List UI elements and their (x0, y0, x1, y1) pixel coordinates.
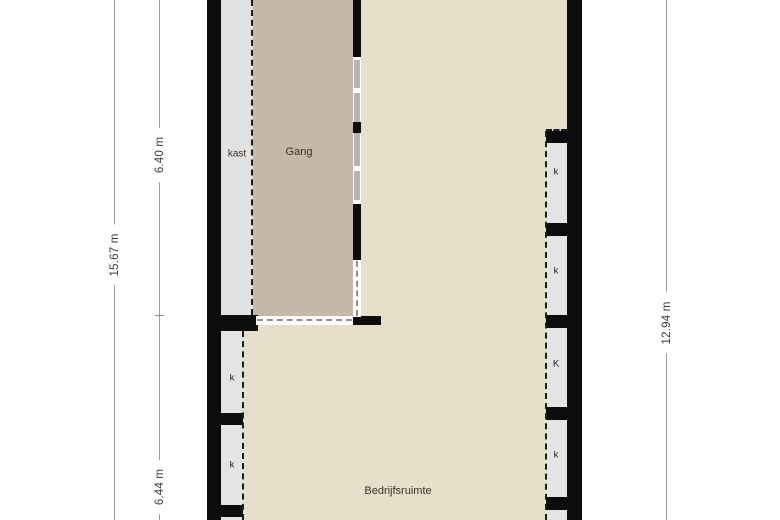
left-closet-column-fill (221, 331, 243, 520)
glass-segment-1 (354, 60, 360, 88)
wall-gang-right-mid (353, 200, 361, 260)
wall-kast-bottom (207, 315, 258, 331)
wall-stub-right-4 (546, 407, 567, 420)
boundary-right-closets-top (546, 129, 567, 131)
wall-stub-left-2 (221, 505, 243, 517)
boundary-kast-gang (251, 0, 253, 315)
wall-gang-bottom-right (353, 316, 381, 325)
closet-label-right-1: k (554, 167, 559, 178)
dimension-label-outer-left: 15.67 m (109, 225, 121, 286)
closet-label-right-2: k (554, 266, 559, 277)
wall-stub-left-1 (221, 413, 243, 425)
opening-gang-right (353, 260, 361, 317)
dimension-label-inner-top-left: 6.40 m (154, 128, 166, 182)
floor-plan-page: { "floor_plan": { "type": "architectural… (0, 0, 780, 520)
closet-label-right-4: k (554, 450, 559, 461)
wall-stub-right-1 (546, 131, 567, 143)
wall-right (567, 0, 582, 520)
glass-segment-2 (354, 93, 360, 122)
room-gang-fill (253, 0, 353, 316)
room-label-bedrijfsruimte: Bedrijfsruimte (364, 485, 431, 497)
dimension-line-right (666, 0, 667, 520)
closet-label-left-2: k (230, 460, 235, 471)
closet-label-left-1: k (230, 373, 235, 384)
glass-segment-3 (354, 133, 360, 166)
room-label-kast: kast (228, 149, 246, 160)
floor-plan-canvas: kast Gang Bedrijfsruimte k k K k k k 15.… (0, 0, 780, 520)
dimension-label-inner-bottom-left: 6.44 m (154, 460, 166, 514)
boundary-left-closets (242, 331, 244, 520)
opening-gang-bottom-dash (257, 319, 352, 321)
wall-gang-right-upper (353, 0, 361, 60)
opening-gang-right-dash (356, 261, 358, 316)
room-label-gang: Gang (286, 146, 313, 158)
dimension-line-inner-left (159, 0, 160, 520)
wall-stub-right-5 (546, 497, 567, 510)
closet-label-right-3: K (553, 359, 559, 370)
glass-partition-post (353, 122, 361, 133)
dimension-label-right: 12.94 m (661, 293, 673, 354)
dimension-tick-inner-left (155, 315, 164, 316)
wall-left-upper (207, 0, 221, 315)
wall-left-lower (207, 331, 221, 520)
wall-stub-right-2 (546, 223, 567, 236)
opening-gang-bottom (256, 316, 353, 325)
glass-segment-4 (354, 171, 360, 200)
boundary-right-closets (545, 131, 547, 520)
wall-stub-right-3 (546, 315, 567, 328)
